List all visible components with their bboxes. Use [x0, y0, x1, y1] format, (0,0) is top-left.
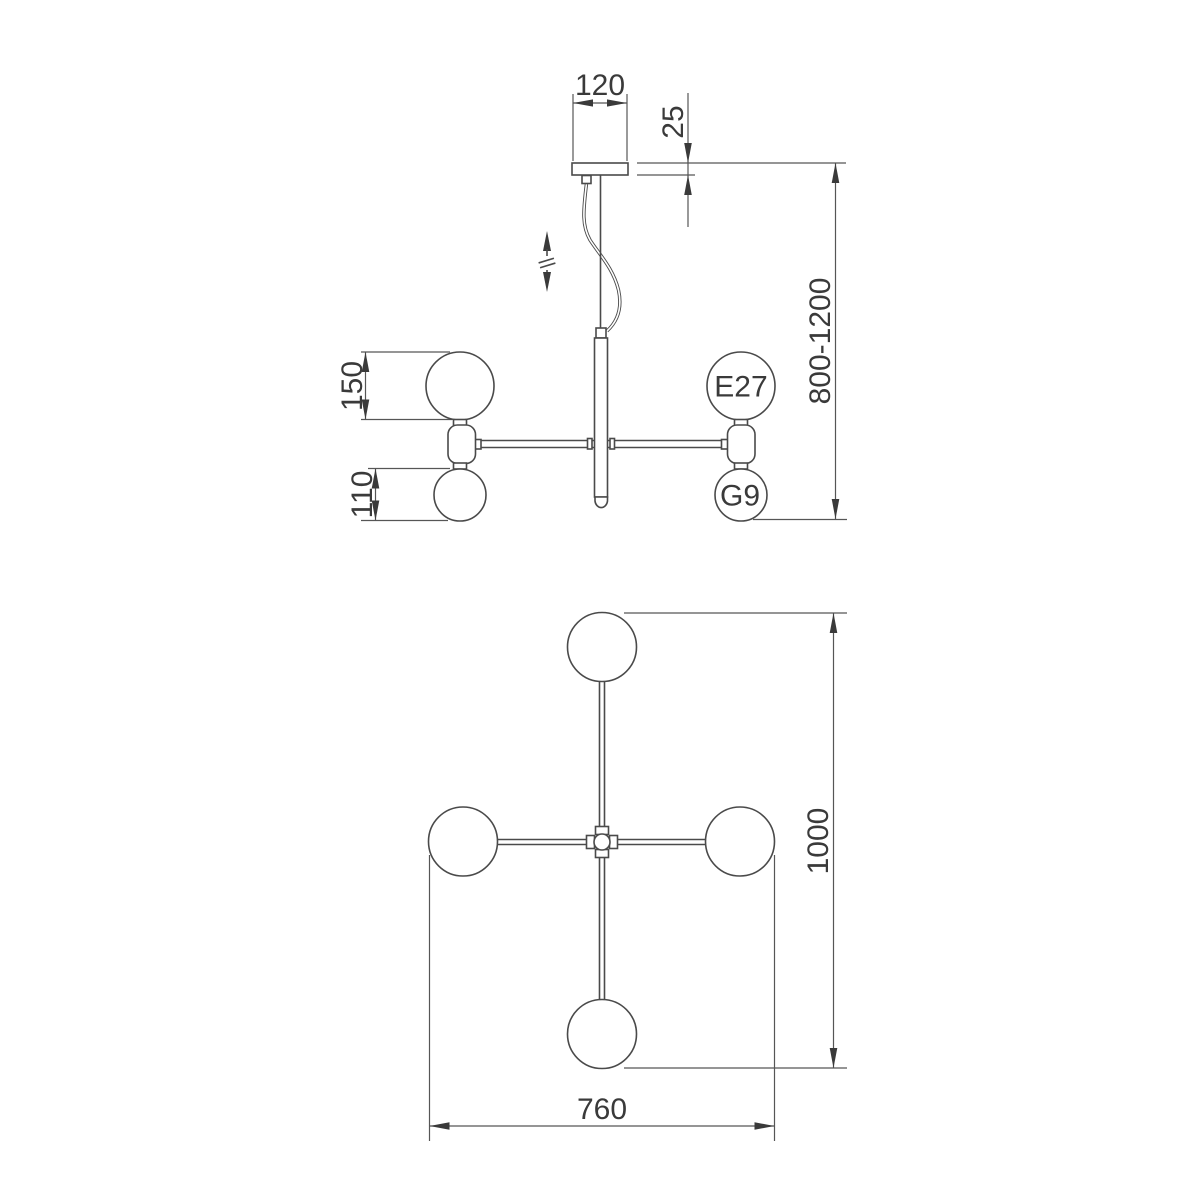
- dimension-canopy-height: 25: [637, 93, 846, 227]
- plan-globe-top: [568, 613, 637, 682]
- plan-view-hub: [587, 827, 618, 858]
- socket-body-left: [448, 425, 476, 464]
- dim-label-1000: 1000: [802, 808, 835, 875]
- left-lamp-assembly: [426, 352, 494, 521]
- small-globe-left: [434, 469, 486, 521]
- side-view: 120 25 800-1200 150: [336, 69, 847, 521]
- dim-label-25: 25: [657, 105, 690, 138]
- plan-view: 1000 760: [429, 613, 848, 1142]
- dimension-plan-width: 760: [430, 855, 775, 1141]
- socket-body-right: [728, 425, 756, 464]
- large-globe-left: [426, 352, 494, 420]
- center-rod: [595, 328, 608, 508]
- dim-label-110: 110: [346, 471, 379, 519]
- plan-globe-right: [706, 807, 775, 876]
- power-cord: [584, 184, 620, 332]
- dimension-canopy-width: 120: [573, 69, 627, 161]
- dim-label-120: 120: [575, 69, 625, 102]
- plan-globe-bottom: [568, 1000, 637, 1069]
- drawing-canvas: 120 25 800-1200 150: [0, 0, 1200, 1200]
- dim-label-150: 150: [336, 361, 369, 411]
- pendant-lamp-dimension-drawing: 120 25 800-1200 150: [0, 0, 1200, 1200]
- rod-end-cap: [595, 497, 608, 508]
- height-adjust-arrows-icon: [539, 231, 556, 292]
- dimension-height-range: 800-1200: [753, 163, 847, 520]
- socket-label-e27: E27: [714, 371, 767, 404]
- dim-label-800-1200: 800-1200: [804, 278, 837, 405]
- right-lamp-assembly: E27 G9: [707, 352, 775, 521]
- cord-gland: [582, 176, 591, 184]
- rod-top-connector: [596, 328, 606, 338]
- dim-label-760: 760: [577, 1093, 627, 1126]
- plan-globe-left: [429, 807, 498, 876]
- socket-label-g9: G9: [720, 480, 760, 513]
